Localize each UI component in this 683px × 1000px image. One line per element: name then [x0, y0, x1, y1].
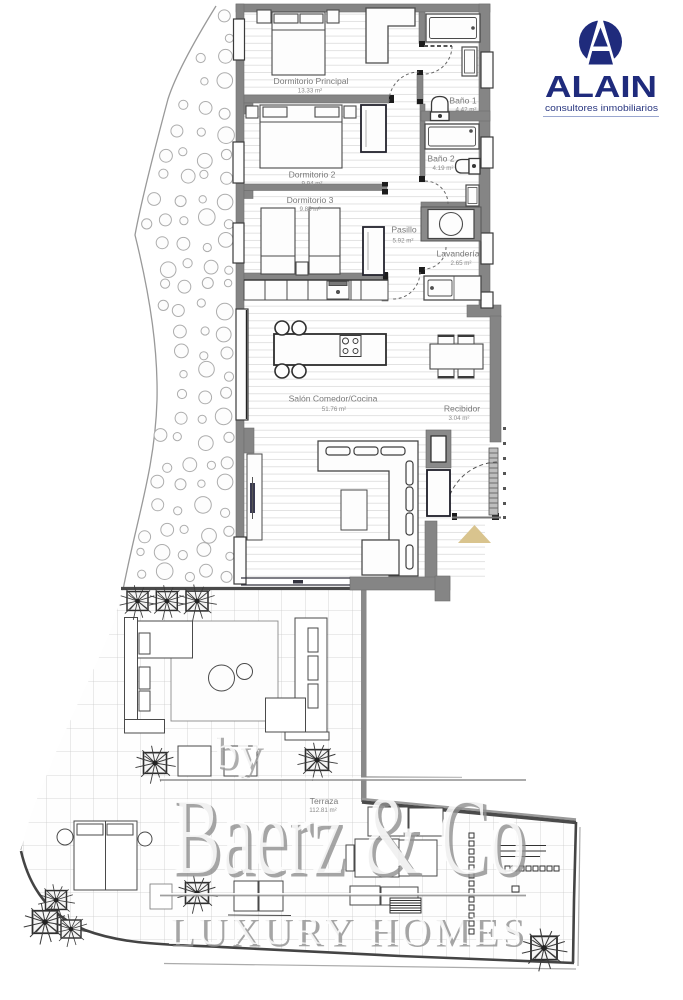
svg-text:5.92 m²: 5.92 m²	[393, 238, 414, 245]
svg-text:51.76 m²: 51.76 m²	[322, 406, 346, 413]
svg-text:4.19 m²: 4.19 m²	[433, 165, 454, 172]
svg-text:3.04 m²: 3.04 m²	[449, 415, 470, 422]
svg-text:4.42 m²: 4.42 m²	[456, 107, 477, 114]
svg-text:consultores inmobiliarios: consultores inmobiliarios	[545, 103, 658, 113]
svg-text:Pasillo: Pasillo	[391, 225, 417, 235]
svg-text:9.94 m²: 9.94 m²	[302, 181, 323, 188]
svg-text:9.85 m²: 9.85 m²	[300, 206, 321, 213]
svg-text:Lavandería: Lavandería	[436, 249, 479, 259]
svg-text:by: by	[214, 726, 262, 778]
svg-text:Salón Comedor/Cocina: Salón Comedor/Cocina	[289, 394, 378, 404]
svg-text:Recibidor: Recibidor	[444, 404, 480, 414]
svg-text:13.33 m²: 13.33 m²	[298, 88, 322, 95]
svg-text:Dormitorio 3: Dormitorio 3	[287, 195, 334, 205]
svg-text:Baño 2: Baño 2	[427, 154, 454, 164]
svg-text:Baño 1: Baño 1	[449, 96, 476, 106]
svg-text:Dormitorio 2: Dormitorio 2	[289, 170, 336, 180]
svg-text:2.65 m²: 2.65 m²	[451, 260, 472, 267]
svg-text:ALAIN: ALAIN	[545, 69, 657, 104]
svg-text:Baerz & Co: Baerz & Co	[171, 774, 525, 898]
svg-text:Dormitorio Principal: Dormitorio Principal	[274, 76, 349, 86]
